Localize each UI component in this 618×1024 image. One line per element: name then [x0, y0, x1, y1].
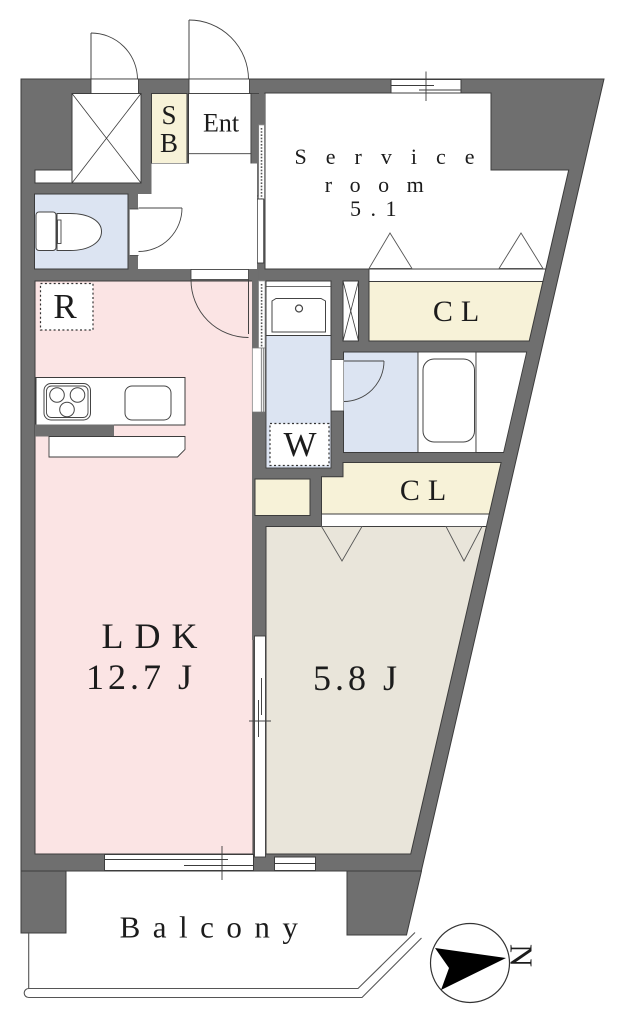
svg-text:Ent: Ent: [203, 109, 240, 138]
svg-text:Balcony: Balcony: [120, 910, 311, 945]
svg-text:LDK: LDK: [102, 616, 209, 656]
svg-text:S: S: [161, 100, 176, 130]
svg-text:12.7 J: 12.7 J: [86, 657, 196, 697]
svg-text:R: R: [53, 287, 77, 326]
svg-text:CL: CL: [400, 474, 454, 507]
svg-text:B: B: [160, 128, 178, 158]
svg-text:5.8 J: 5.8 J: [313, 658, 401, 698]
svg-text:N: N: [504, 944, 540, 967]
svg-text:Service: Service: [295, 144, 494, 169]
svg-text:W: W: [283, 425, 316, 464]
svg-text:CL: CL: [433, 295, 487, 328]
svg-text:5.1: 5.1: [350, 196, 406, 221]
svg-text:room: room: [325, 172, 441, 197]
